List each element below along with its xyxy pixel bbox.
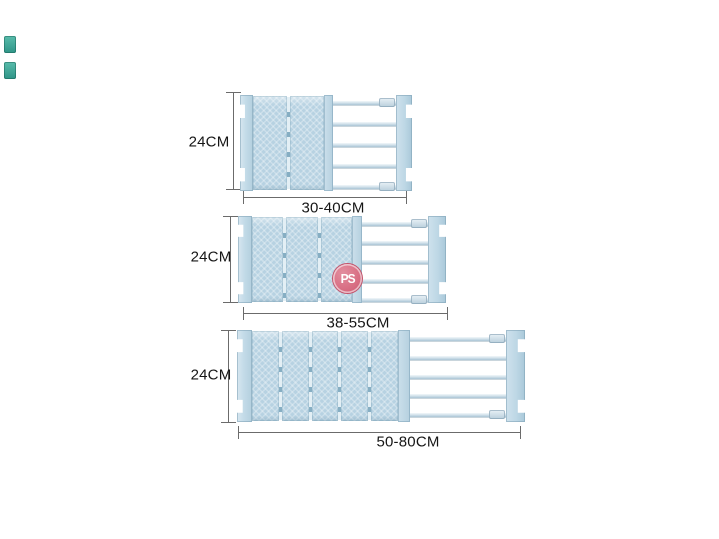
shelf-panel: [286, 217, 317, 302]
telescoping-rod: [331, 143, 398, 147]
ps-watermark-text: PS: [340, 272, 354, 285]
product-dimension-diagram: 24CM 30-40CM 24CM 38-55CM 24CM 50-80CM P…: [0, 0, 719, 539]
right-end-cap: [428, 216, 446, 303]
rod-connector-bar: [398, 330, 410, 422]
shelf-panel: [341, 331, 368, 421]
telescoping-rod: [360, 279, 430, 283]
telescoping-rod: [360, 241, 430, 245]
width-label: 30-40CM: [301, 201, 364, 216]
rod-adjuster-collar: [489, 410, 505, 419]
shelf-illustration-small: [240, 95, 412, 191]
shelf-panel: [252, 217, 283, 302]
rod-connector-bar: [324, 95, 333, 191]
telescoping-rod: [331, 164, 398, 168]
height-label: 24CM: [191, 368, 232, 383]
right-end-cap: [506, 330, 525, 422]
left-end-cap: [238, 216, 252, 303]
shelf-illustration-large: [237, 330, 525, 422]
ps-watermark: PS: [333, 264, 362, 293]
shelf-panel: [253, 96, 287, 190]
telescoping-rod: [408, 375, 508, 379]
shelf-panel: [371, 331, 398, 421]
rod-adjuster-collar: [411, 295, 427, 304]
width-dimension-line: [243, 197, 407, 198]
left-end-cap: [237, 330, 252, 422]
rod-adjuster-collar: [379, 98, 395, 107]
left-edge-thumbnail-fragment: [4, 36, 16, 53]
rod-adjuster-collar: [379, 182, 395, 191]
left-edge-thumbnail-fragment: [4, 62, 16, 79]
telescoping-rod: [408, 394, 508, 398]
shelf-panel: [282, 331, 309, 421]
telescoping-rod: [331, 122, 398, 126]
telescoping-rod: [360, 260, 430, 264]
right-end-cap: [396, 95, 412, 191]
shelf-panel: [312, 331, 339, 421]
rod-adjuster-collar: [411, 219, 427, 228]
height-label: 24CM: [189, 135, 230, 150]
width-label: 38-55CM: [326, 316, 389, 331]
shelf-panel: [252, 331, 279, 421]
height-dimension-line: [233, 92, 234, 190]
width-label: 50-80CM: [376, 435, 439, 450]
left-end-cap: [240, 95, 253, 191]
height-label: 24CM: [191, 250, 232, 265]
rod-adjuster-collar: [489, 334, 505, 343]
telescoping-rod: [408, 356, 508, 360]
shelf-panel: [290, 96, 324, 190]
